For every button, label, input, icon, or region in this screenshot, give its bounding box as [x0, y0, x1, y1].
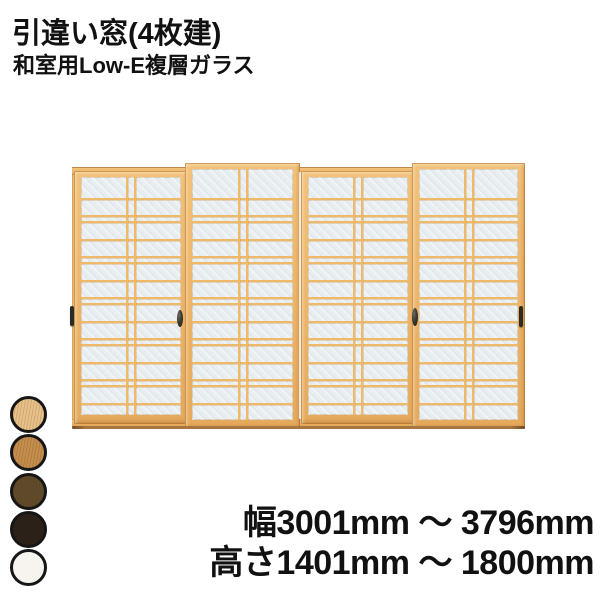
kumiko-horizontal-line [419, 338, 518, 340]
color-swatch-white[interactable] [10, 549, 47, 586]
product-window-illustration [72, 163, 525, 431]
kumiko-horizontal-line [308, 198, 408, 200]
kumiko-horizontal-line [81, 198, 181, 200]
kumiko-horizontal-line [419, 198, 518, 200]
sill-shadow [72, 426, 525, 429]
kumiko-horizontal-line [81, 280, 181, 282]
kumiko-horizontal-line [192, 198, 293, 200]
kumiko-vertical-line [134, 177, 136, 415]
kumiko-horizontal-line [192, 239, 293, 241]
kumiko-horizontal-line [308, 297, 408, 299]
kumiko-horizontal-line [419, 321, 518, 323]
kumiko-horizontal-line [192, 344, 293, 346]
center-meeting-gap [299, 172, 301, 419]
kumiko-horizontal-line [81, 362, 181, 364]
kumiko-horizontal-line [81, 297, 181, 299]
kumiko-horizontal-line [419, 297, 518, 299]
kumiko-horizontal-line [308, 256, 408, 258]
kumiko-horizontal-line [308, 239, 408, 241]
size-range-text: 幅3001mm ～ 3796mm 高さ1401mm ～ 1800mm [209, 503, 594, 583]
kumiko-horizontal-line [308, 321, 408, 323]
kumiko-horizontal-line [308, 262, 408, 264]
window-panel-3 [301, 171, 415, 424]
kumiko-vertical-line [126, 177, 128, 415]
kumiko-horizontal-line [81, 379, 181, 381]
kumiko-horizontal-line [81, 256, 181, 258]
kumiko-horizontal-line [308, 385, 408, 387]
kumiko-horizontal-line [308, 338, 408, 340]
kumiko-vertical-line [361, 177, 363, 415]
panel-handle-icon [412, 308, 418, 326]
kumiko-horizontal-line [419, 344, 518, 346]
kumiko-horizontal-line [308, 379, 408, 381]
kumiko-horizontal-line [419, 215, 518, 217]
kumiko-horizontal-line [192, 385, 293, 387]
kumiko-horizontal-line [308, 362, 408, 364]
kumiko-horizontal-line [81, 321, 181, 323]
kumiko-horizontal-line [308, 221, 408, 223]
kumiko-horizontal-line [308, 403, 408, 405]
kumiko-horizontal-line [419, 221, 518, 223]
kumiko-horizontal-line [81, 303, 181, 305]
panel-glass [81, 177, 181, 415]
kumiko-horizontal-line [419, 362, 518, 364]
kumiko-horizontal-line [419, 403, 518, 405]
kumiko-horizontal-line [192, 215, 293, 217]
kumiko-horizontal-line [308, 215, 408, 217]
height-range: 高さ1401mm ～ 1800mm [209, 543, 594, 583]
window-panel-2 [185, 163, 300, 429]
wood-grain-texture [13, 399, 44, 430]
kumiko-horizontal-line [81, 344, 181, 346]
kumiko-vertical-line [353, 177, 355, 415]
window-panel-4 [412, 163, 525, 429]
kumiko-horizontal-line [192, 221, 293, 223]
page-title: 引違い窓(4枚建) [12, 10, 221, 52]
kumiko-horizontal-line [192, 297, 293, 299]
panel-glass [192, 169, 293, 420]
kumiko-horizontal-line [192, 256, 293, 258]
panel-glass [308, 177, 408, 415]
kumiko-vertical-line [238, 169, 240, 420]
wood-grain-texture [13, 476, 44, 507]
kumiko-vertical-line [246, 169, 248, 420]
wood-grain-texture [13, 437, 44, 468]
kumiko-horizontal-line [419, 280, 518, 282]
panel-glass [419, 169, 518, 420]
kumiko-horizontal-line [192, 303, 293, 305]
window-panel-1 [74, 171, 188, 424]
kumiko-horizontal-line [419, 262, 518, 264]
kumiko-horizontal-line [308, 344, 408, 346]
kumiko-horizontal-line [192, 338, 293, 340]
kumiko-horizontal-line [192, 280, 293, 282]
color-swatch-medium-wood[interactable] [10, 434, 47, 471]
kumiko-horizontal-line [308, 280, 408, 282]
color-swatch-dark-wood[interactable] [10, 473, 47, 510]
kumiko-horizontal-line [81, 338, 181, 340]
kumiko-horizontal-line [81, 403, 181, 405]
kumiko-horizontal-line [81, 221, 181, 223]
kumiko-horizontal-line [81, 239, 181, 241]
kumiko-horizontal-line [419, 385, 518, 387]
kumiko-horizontal-line [81, 262, 181, 264]
kumiko-vertical-line [472, 169, 474, 420]
kumiko-horizontal-line [419, 239, 518, 241]
kumiko-horizontal-line [419, 303, 518, 305]
kumiko-vertical-line [464, 169, 466, 420]
color-swatch-light-wood[interactable] [10, 396, 47, 433]
panel-handle-icon [519, 306, 523, 327]
color-swatch-dark-brown[interactable] [10, 511, 47, 548]
kumiko-horizontal-line [192, 321, 293, 323]
kumiko-horizontal-line [419, 379, 518, 381]
page-subtitle: 和室用Low-E複層ガラス [13, 48, 255, 80]
kumiko-horizontal-line [308, 303, 408, 305]
panel-handle-icon [70, 306, 74, 326]
kumiko-horizontal-line [81, 385, 181, 387]
kumiko-horizontal-line [192, 362, 293, 364]
kumiko-horizontal-line [192, 379, 293, 381]
kumiko-horizontal-line [192, 403, 293, 405]
kumiko-horizontal-line [81, 215, 181, 217]
width-range: 幅3001mm ～ 3796mm [209, 503, 594, 543]
kumiko-horizontal-line [192, 262, 293, 264]
panel-handle-icon [177, 310, 183, 327]
kumiko-horizontal-line [419, 256, 518, 258]
